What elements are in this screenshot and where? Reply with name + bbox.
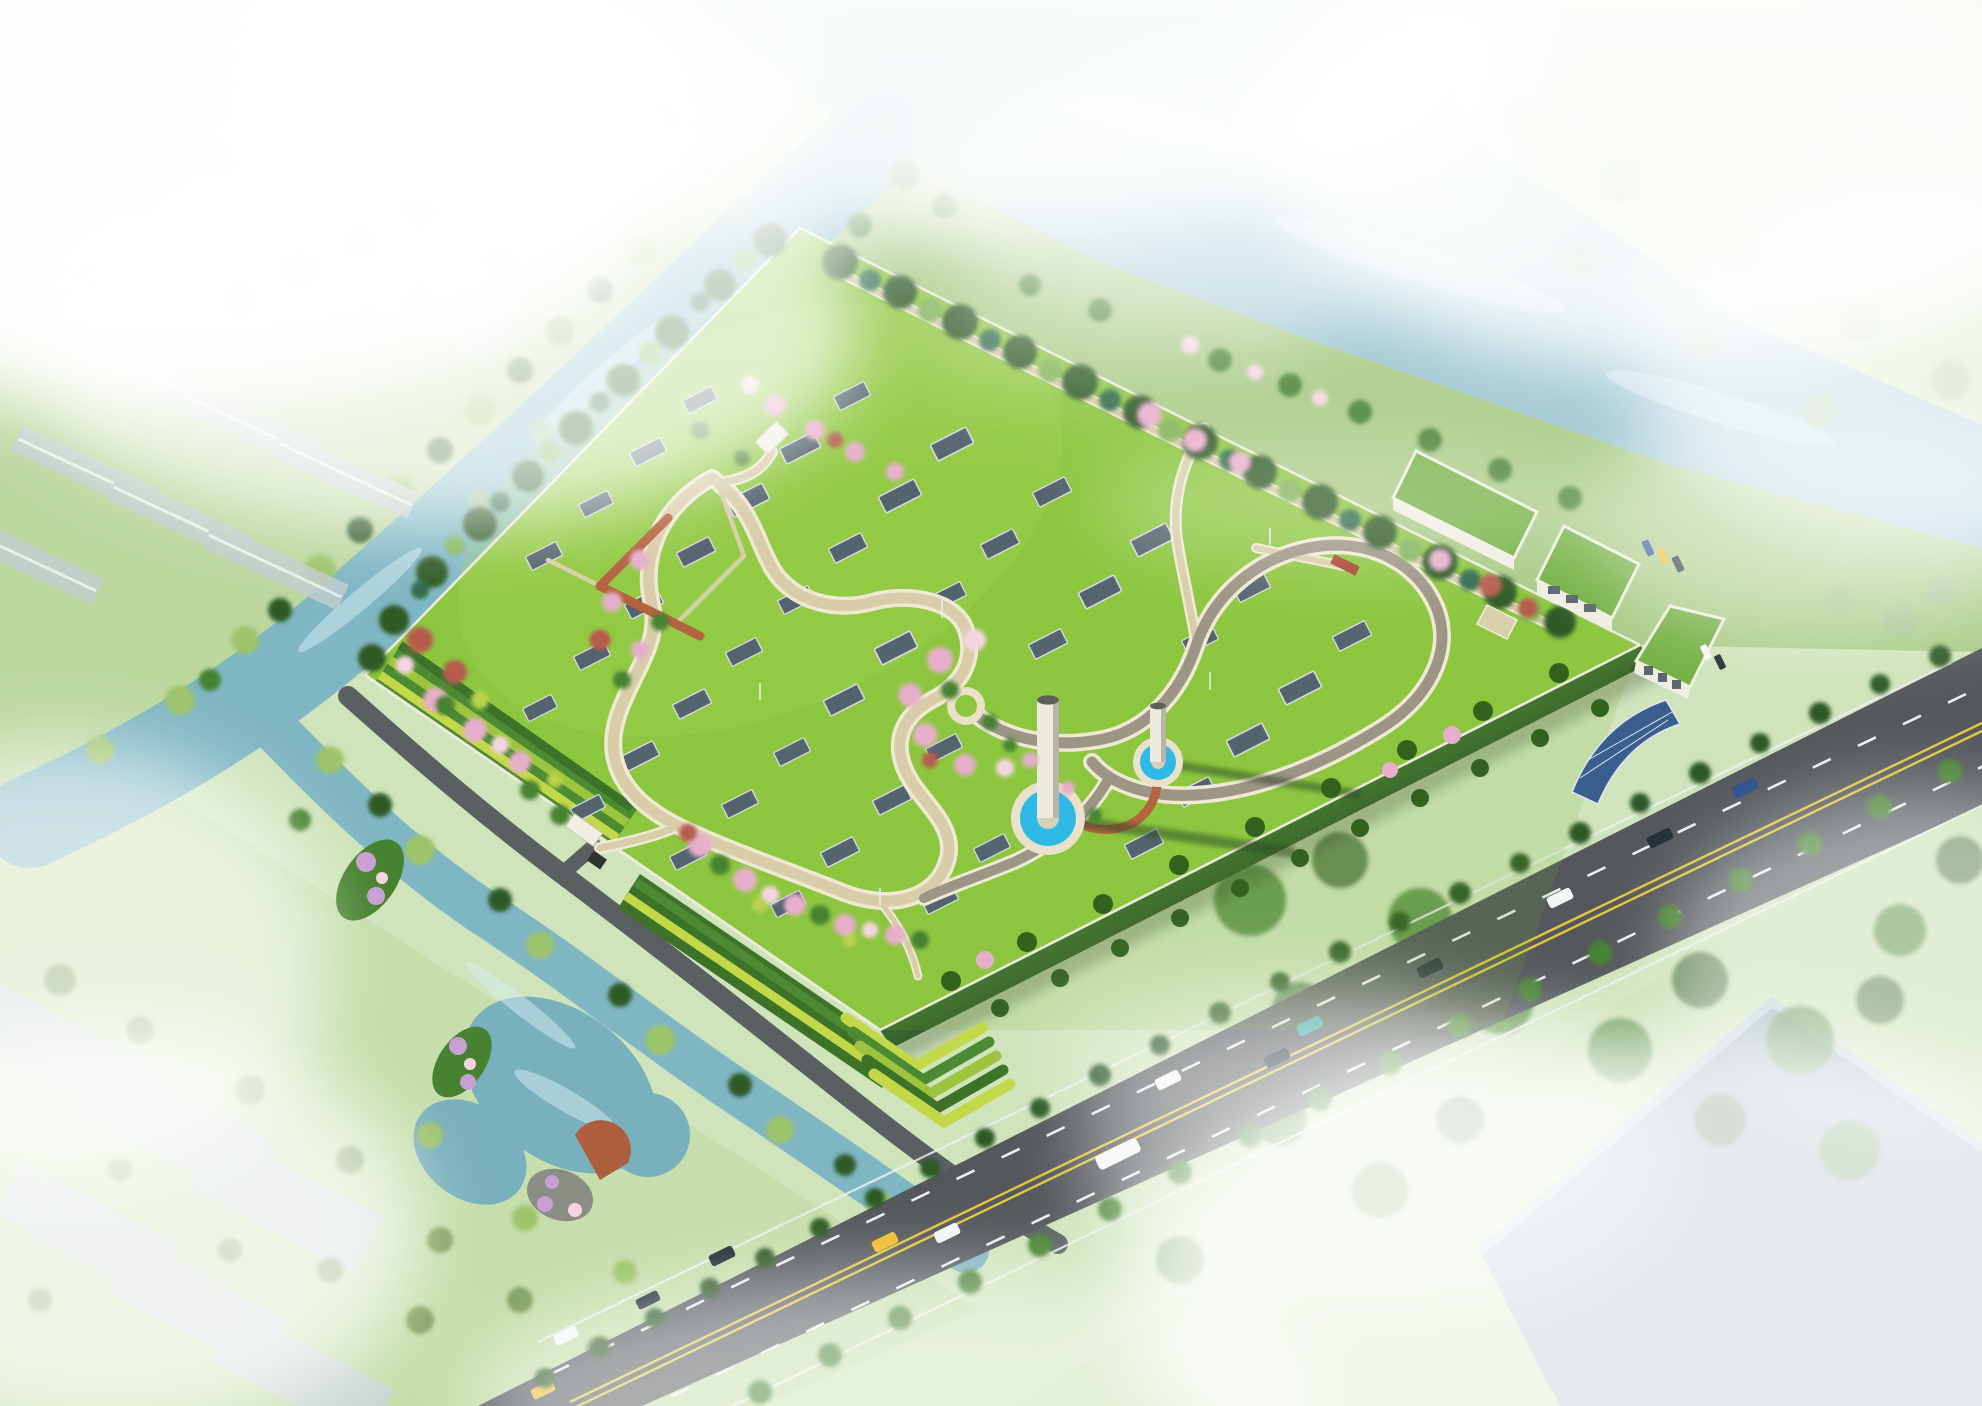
rendering-stage — [0, 0, 1982, 1406]
exhaust-stack-large — [1037, 695, 1059, 818]
exhaust-stack-small — [1150, 703, 1166, 762]
aerial-rendering — [0, 0, 1982, 1406]
